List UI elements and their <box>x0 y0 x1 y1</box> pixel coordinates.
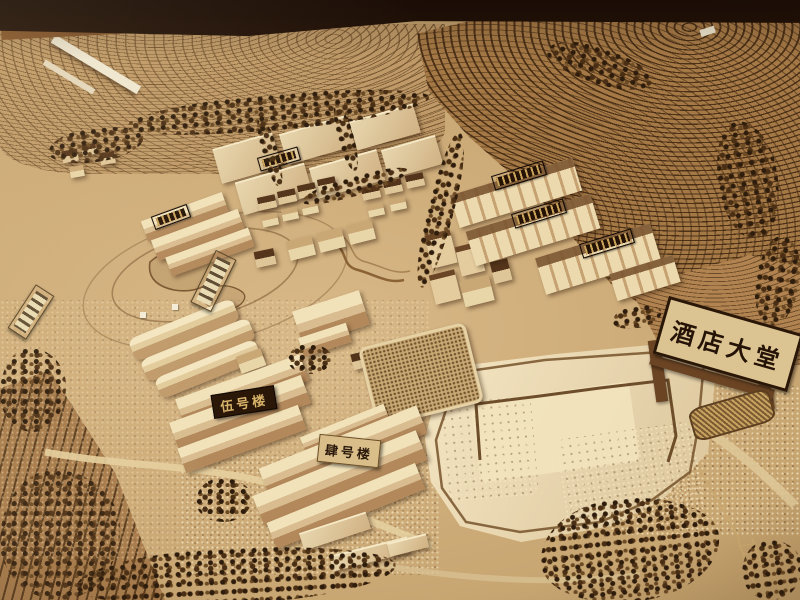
roof-chimney <box>172 304 178 310</box>
plaque-building-4-text: 肆号楼 <box>324 439 374 463</box>
roof-chimney <box>140 312 146 318</box>
architectural-model-photo: 酒店大堂 伍号楼 肆号楼 <box>0 0 800 600</box>
plaque-building-5-text: 伍号楼 <box>219 389 269 415</box>
